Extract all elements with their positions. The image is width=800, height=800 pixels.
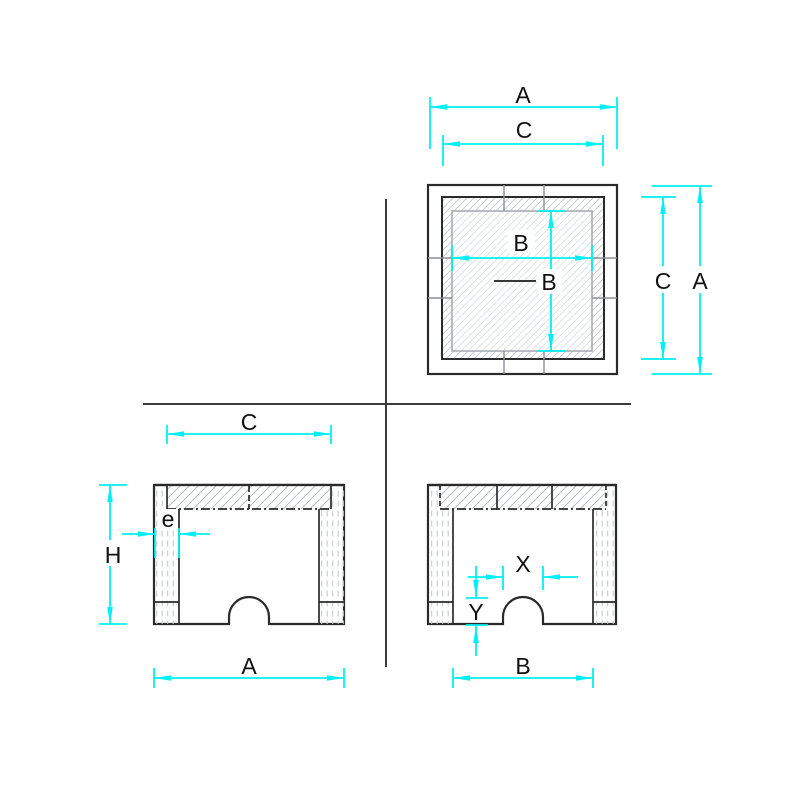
dim-plan-seat-height: C [641,197,676,359]
dim-label-b: B [515,653,530,679]
side-view: X Y B [428,485,616,688]
engineering-drawing: A C B B [0,0,800,800]
dim-label-e: e [162,506,175,532]
dim-label-y: Y [468,599,483,625]
dim-plan-seat-width: C [443,117,603,166]
dim-label-h: H [105,542,122,568]
dim-label-c: C [516,117,533,143]
dim-label-a: A [515,82,531,108]
dim-label-b: B [513,230,528,256]
side-slab-hatch [440,485,606,509]
dim-label-a: A [692,268,708,294]
dim-label-c: C [655,268,672,294]
front-view: C H e A [99,409,344,688]
leader-label-b: B [541,269,556,295]
dim-side-notch-height: Y [465,566,488,656]
dim-side-notch-width: X [468,551,578,590]
drawing-canvas: A C B B [0,0,800,800]
dim-front-seat-width: C [167,409,331,444]
dim-label-x: X [515,551,530,577]
dim-label-a: A [241,653,257,679]
dim-side-opening-width: B [453,653,593,688]
dim-front-overall-width: A [154,653,344,688]
dim-front-height: H [99,485,127,624]
dim-label-c: C [241,409,258,435]
plan-view: A C B B [428,82,713,374]
